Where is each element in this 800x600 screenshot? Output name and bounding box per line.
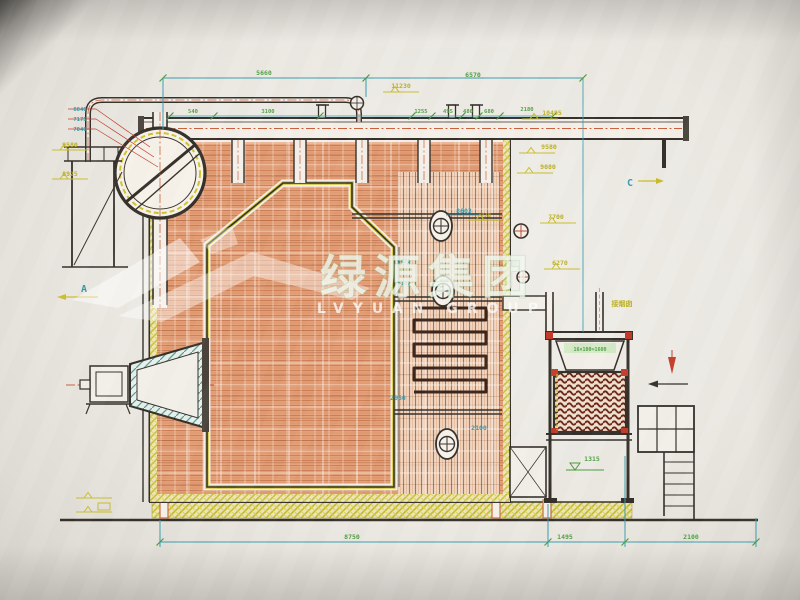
dim-2960: 2960 bbox=[390, 394, 406, 402]
watermark-en-text: LVYUAN GROUP bbox=[317, 301, 547, 317]
photo-of-boiler-drawing: { "watermark": { "cn": "绿源集团", "en": "LV… bbox=[0, 0, 800, 600]
dim-480: 480 bbox=[463, 109, 473, 115]
elev-7175: 7175 bbox=[73, 117, 86, 123]
elev-9580-left: 9580 bbox=[62, 141, 78, 149]
boiler-ga-drawing: 5660657011230540310012554954806802180884… bbox=[0, 0, 800, 600]
dim-2100-mid: 2100 bbox=[471, 424, 487, 432]
elev-6270: 6270 bbox=[552, 259, 568, 267]
section-c-arrow bbox=[656, 178, 664, 184]
elev-9580-right: 9580 bbox=[541, 143, 557, 151]
elev-8840: 8840 bbox=[73, 107, 86, 113]
dim-6570: 6570 bbox=[465, 71, 481, 79]
dim-8750: 8750 bbox=[344, 533, 360, 541]
stairs bbox=[638, 406, 694, 519]
dim-495: 495 bbox=[443, 109, 453, 115]
section-a-arrow bbox=[57, 294, 66, 300]
burner-assembly bbox=[66, 338, 214, 432]
elev-10495: 10495 bbox=[542, 109, 562, 117]
down-arrow bbox=[668, 357, 676, 374]
dim-8603: 8603 bbox=[456, 207, 472, 215]
section-c: C bbox=[627, 178, 633, 189]
level-mark-1315 bbox=[566, 463, 604, 470]
elev-11230: 11230 bbox=[391, 82, 411, 90]
dim-2180: 2180 bbox=[520, 107, 533, 113]
elev-770: 770 bbox=[481, 213, 491, 219]
economizer-coil bbox=[554, 372, 626, 432]
elev-7040: 7040 bbox=[73, 127, 86, 133]
dim-3100: 3100 bbox=[261, 109, 274, 115]
economizer-unit bbox=[544, 288, 688, 503]
watermark-cn-text: 绿源集团 bbox=[320, 250, 536, 304]
dim-1315: 1315 bbox=[584, 455, 600, 463]
dim-680: 680 bbox=[484, 109, 494, 115]
elev-9080: 9080 bbox=[540, 163, 556, 171]
dim-540: 540 bbox=[188, 109, 198, 115]
elev-8925: 8925 bbox=[62, 170, 78, 178]
left-arrow bbox=[648, 381, 658, 388]
dim-1495: 1495 bbox=[557, 533, 573, 541]
dim-1255: 1255 bbox=[414, 109, 427, 115]
eco-spec: 16×100=1600 bbox=[573, 347, 606, 353]
dim-5660: 5660 bbox=[256, 69, 272, 77]
note-chimney: 接烟囱 bbox=[612, 299, 633, 308]
elev-7700: 7700 bbox=[548, 213, 564, 221]
dim-2100: 2100 bbox=[683, 533, 699, 541]
